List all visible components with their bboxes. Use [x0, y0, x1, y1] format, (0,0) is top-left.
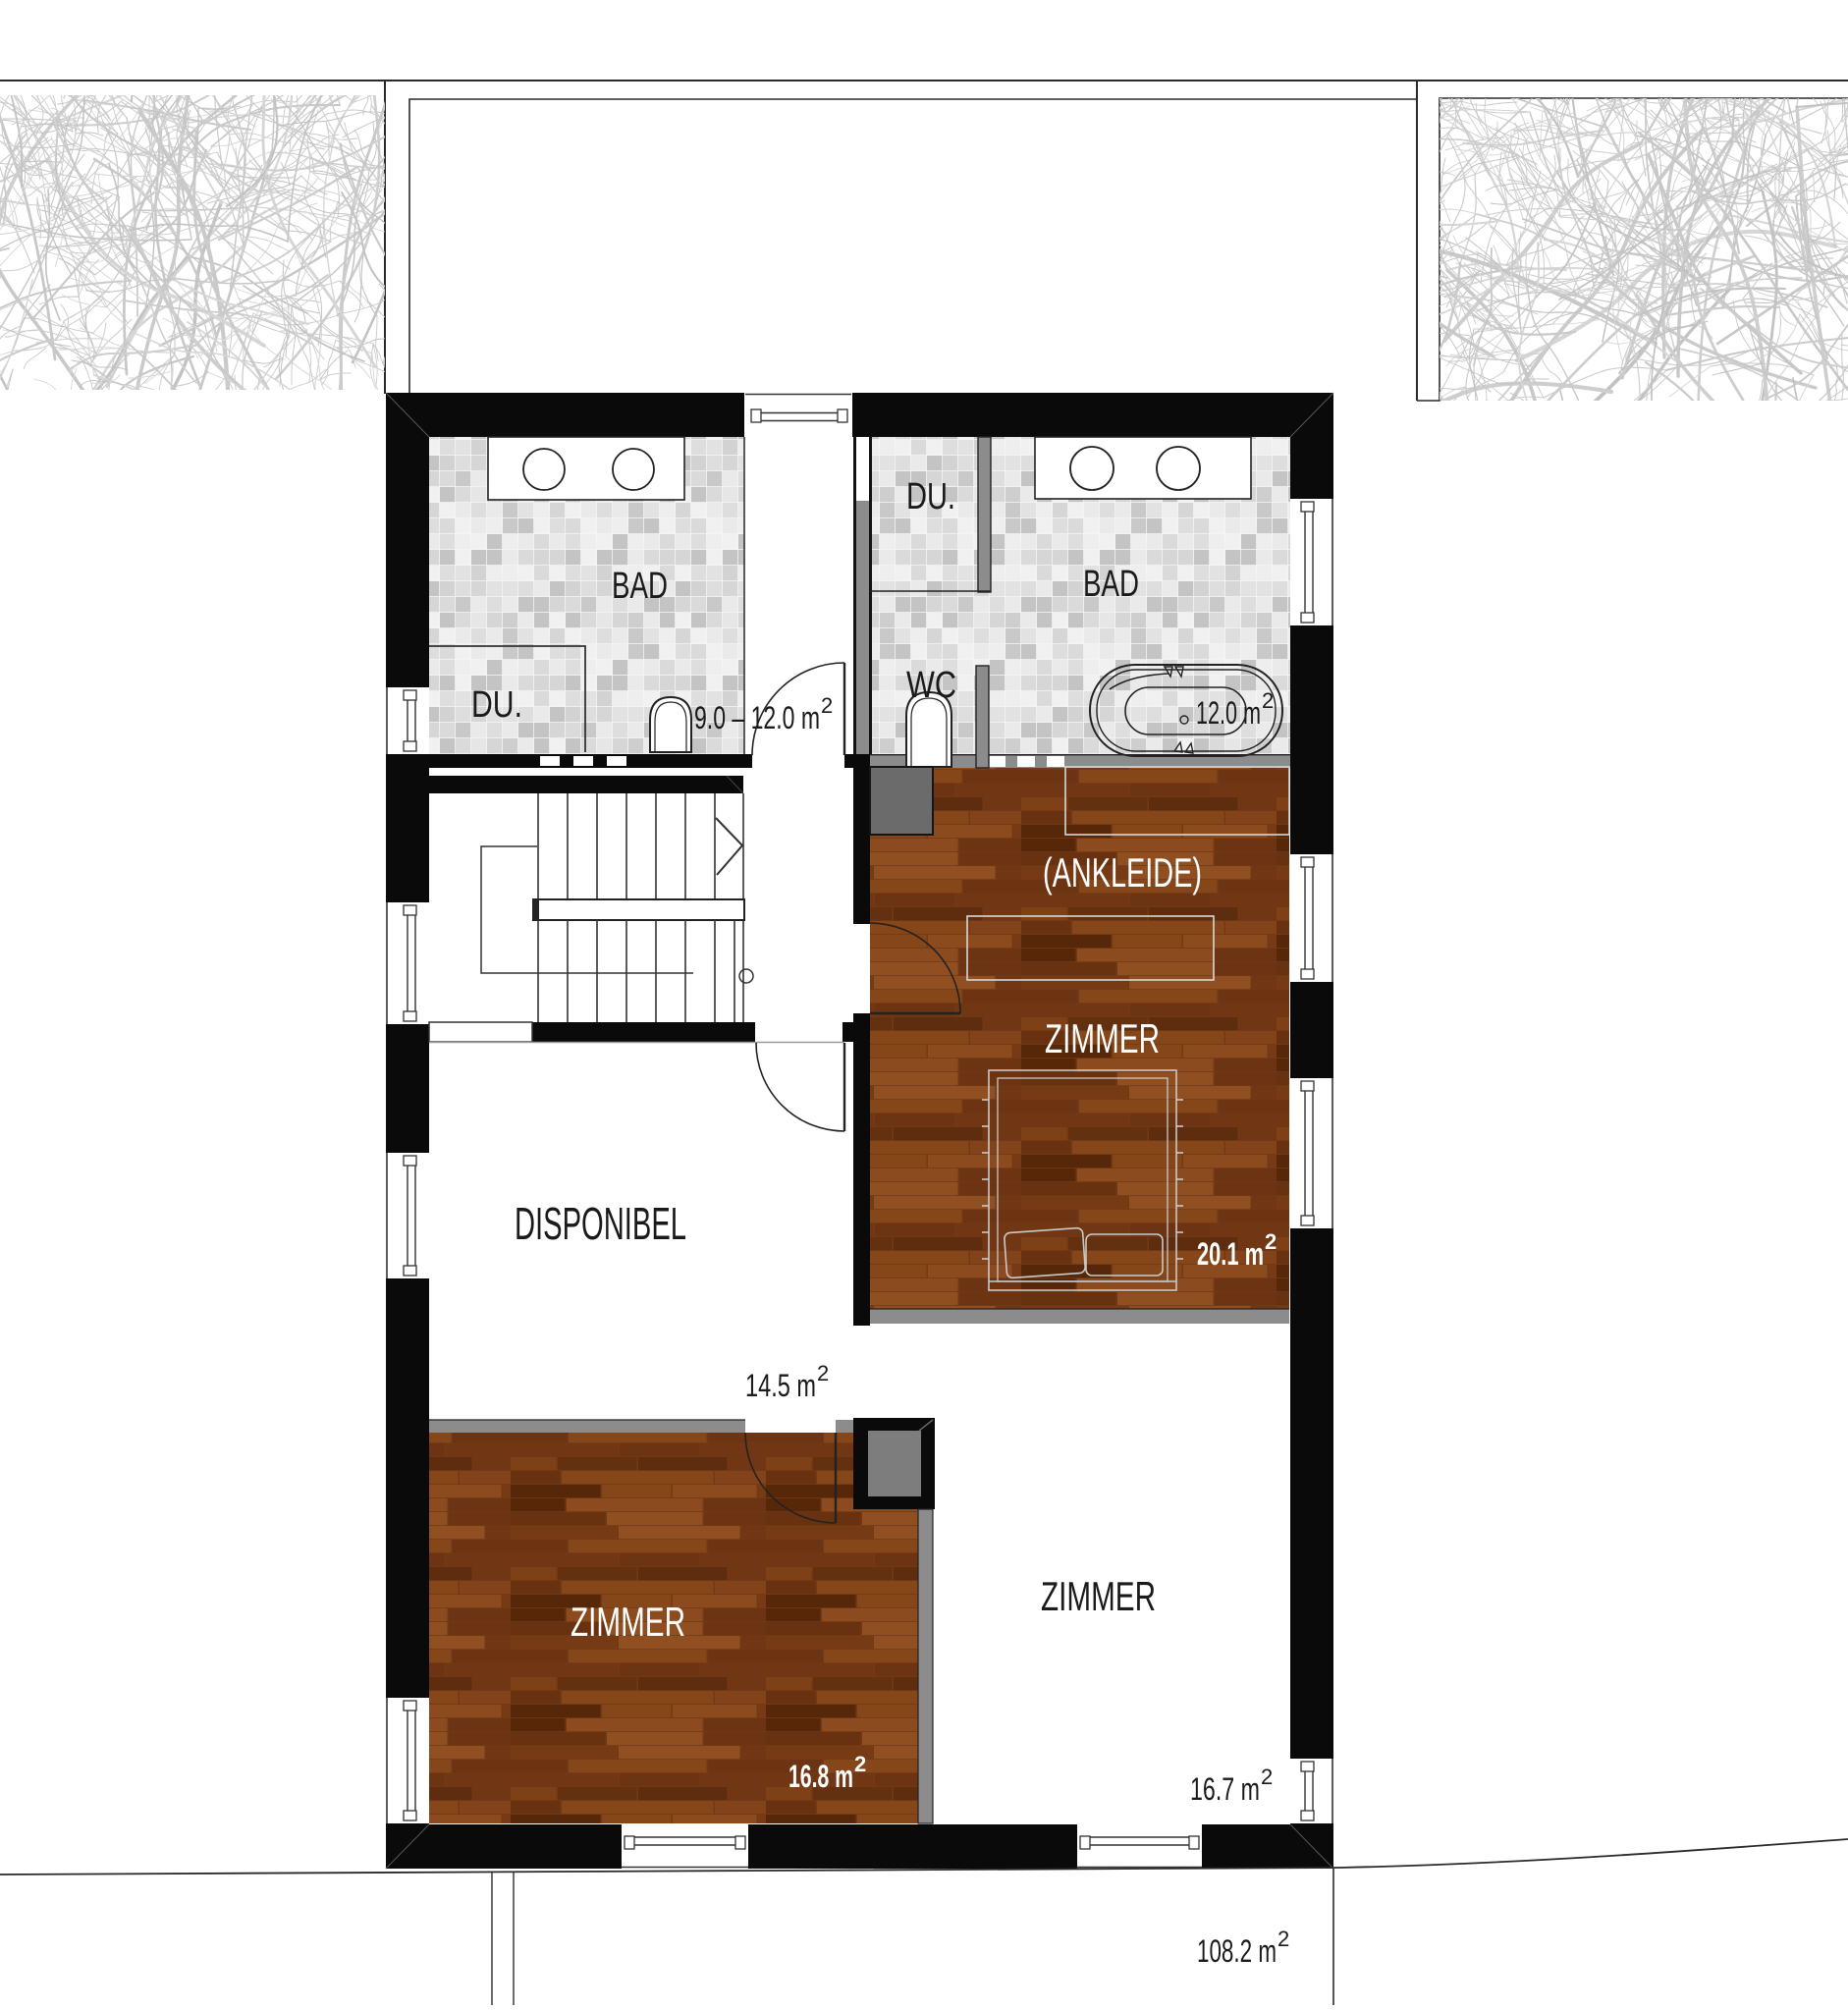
svg-text:BAD: BAD	[612, 566, 668, 607]
svg-text:2: 2	[1265, 1229, 1277, 1254]
svg-text:2: 2	[1261, 1765, 1273, 1789]
svg-text:ZIMMER: ZIMMER	[1045, 1015, 1160, 1061]
svg-text:DISPONIBEL: DISPONIBEL	[515, 1198, 686, 1249]
svg-text:16.8 m: 16.8 m	[788, 1759, 853, 1794]
svg-text:9.0 – 12.0 m: 9.0 – 12.0 m	[694, 700, 820, 735]
svg-text:108.2 m: 108.2 m	[1197, 1933, 1277, 1969]
svg-text:2: 2	[1262, 688, 1274, 713]
svg-text:2: 2	[821, 693, 833, 718]
svg-text:WC: WC	[906, 665, 956, 706]
svg-text:2: 2	[1277, 1927, 1289, 1951]
svg-text:16.7 m: 16.7 m	[1190, 1771, 1260, 1807]
svg-text:ZIMMER: ZIMMER	[571, 1599, 685, 1645]
svg-text:12.0 m: 12.0 m	[1196, 695, 1261, 731]
svg-text:DU.: DU.	[471, 684, 522, 726]
svg-text:2: 2	[854, 1752, 866, 1776]
svg-text:14.5 m: 14.5 m	[745, 1368, 816, 1403]
svg-text:(ANKLEIDE): (ANKLEIDE)	[1043, 849, 1202, 896]
svg-text:BAD: BAD	[1083, 564, 1139, 605]
svg-text:20.1 m: 20.1 m	[1197, 1236, 1264, 1272]
svg-text:2: 2	[817, 1361, 829, 1385]
svg-text:DU.: DU.	[906, 476, 955, 517]
svg-text:ZIMMER: ZIMMER	[1041, 1573, 1156, 1619]
